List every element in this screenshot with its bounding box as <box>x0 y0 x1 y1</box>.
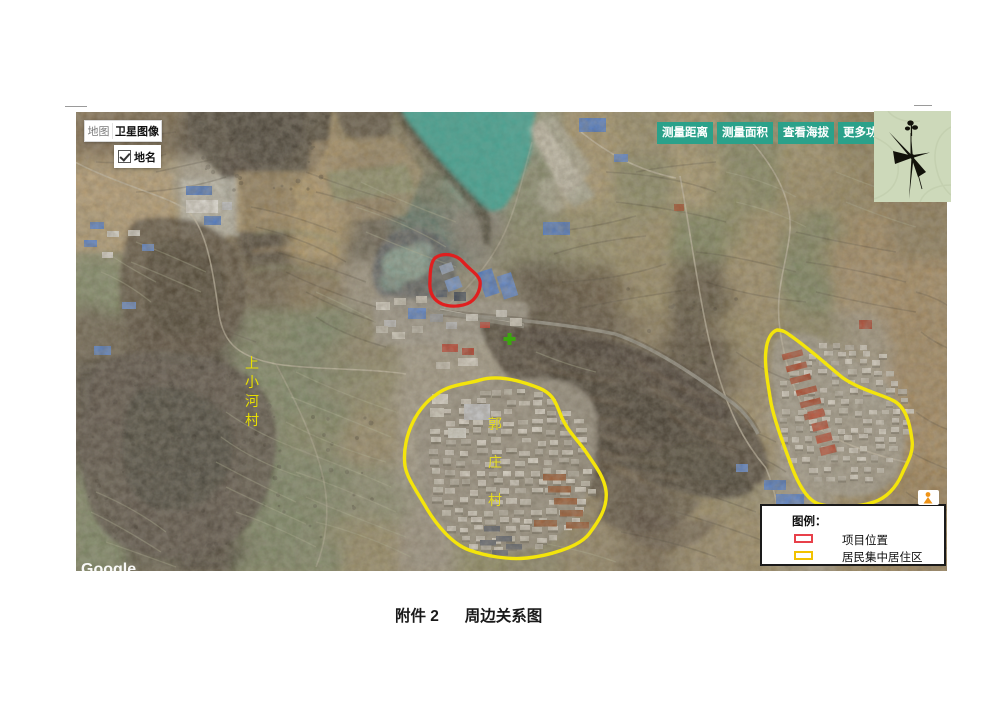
svg-text:村: 村 <box>245 412 259 428</box>
svg-text:Google: Google <box>81 561 136 571</box>
svg-text:郭: 郭 <box>488 416 502 432</box>
svg-text:庄: 庄 <box>488 454 502 470</box>
svg-text:小: 小 <box>245 374 259 390</box>
svg-text:上: 上 <box>245 355 259 371</box>
svg-text:河: 河 <box>245 393 259 409</box>
svg-text:村: 村 <box>488 492 502 508</box>
